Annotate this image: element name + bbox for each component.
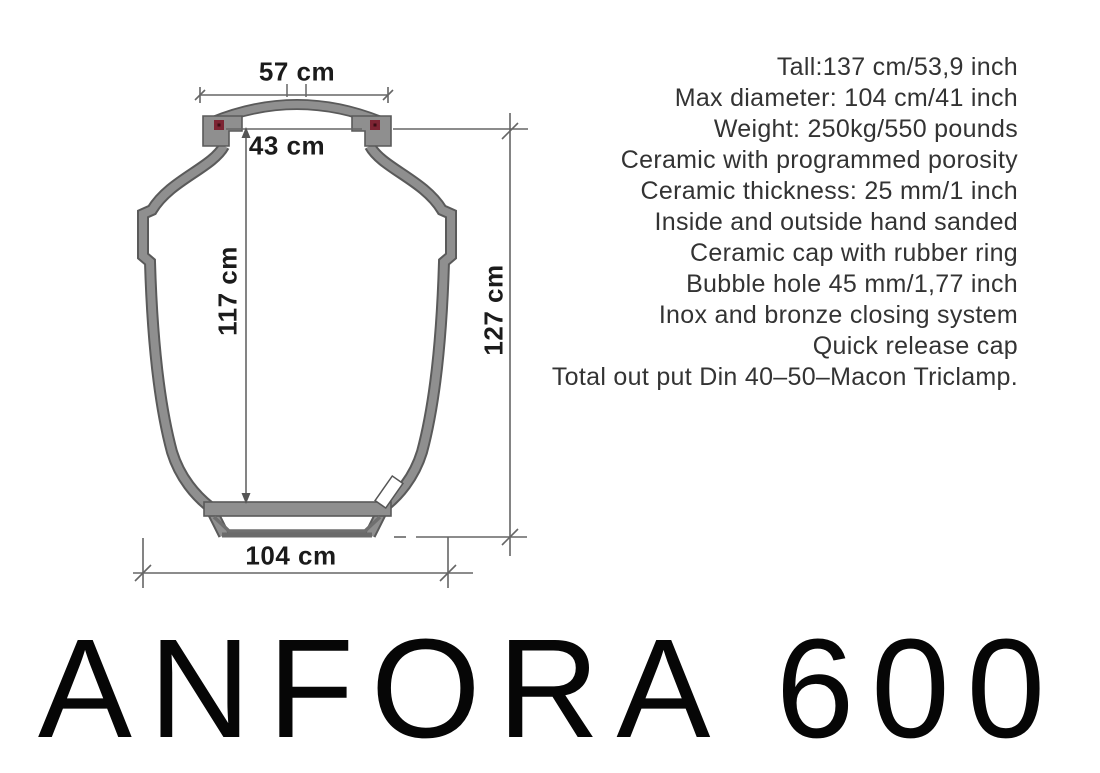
amphora-diagram: [0, 0, 600, 620]
label-mouth-width: 43 cm: [249, 131, 325, 162]
label-outer-height: 127 cm: [479, 264, 510, 355]
amphora-right-wall: [370, 146, 451, 535]
spec-line: Tall:137 cm/53,9 inch: [552, 52, 1018, 83]
label-inner-height: 117 cm: [213, 246, 244, 336]
spec-line: Max diameter: 104 cm/41 inch: [552, 83, 1018, 114]
amphora-left-wall: [143, 146, 224, 535]
spec-line: Ceramic thickness: 25 mm/1 inch: [552, 176, 1018, 207]
foot-ring: [214, 517, 380, 531]
spec-line: Quick release cap: [552, 331, 1018, 362]
spec-sheet-page: 57 cm 43 cm 117 cm 127 cm 104 cm Tall:13…: [0, 0, 1100, 773]
specs-list: Tall:137 cm/53,9 inch Max diameter: 104 …: [552, 52, 1018, 393]
spec-line: Ceramic with programmed porosity: [552, 145, 1018, 176]
label-max-diameter: 104 cm: [245, 541, 336, 572]
product-title: ANFORA 600: [0, 618, 1100, 759]
spec-line: Bubble hole 45 mm/1,77 inch: [552, 269, 1018, 300]
label-cap-width: 57 cm: [259, 57, 335, 88]
spec-line: Inside and outside hand sanded: [552, 207, 1018, 238]
floor-band: [204, 502, 391, 516]
spec-line: Inox and bronze closing system: [552, 300, 1018, 331]
spec-line: Total out put Din 40–50–Macon Triclamp.: [552, 362, 1018, 393]
spec-line: Ceramic cap with rubber ring: [552, 238, 1018, 269]
spec-line: Weight: 250kg/550 pounds: [552, 114, 1018, 145]
